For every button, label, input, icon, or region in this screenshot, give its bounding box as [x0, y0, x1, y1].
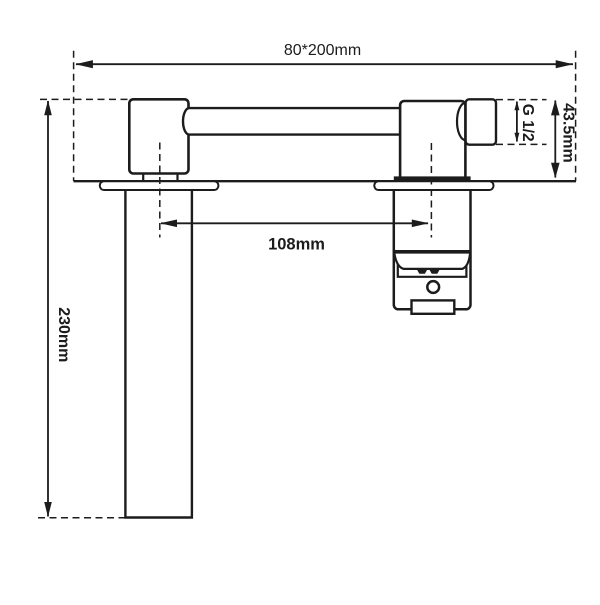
svg-text:43.5mm: 43.5mm — [559, 103, 576, 163]
svg-text:108mm: 108mm — [268, 236, 325, 254]
svg-text:G 1/2: G 1/2 — [519, 104, 536, 142]
svg-text:80*200mm: 80*200mm — [284, 42, 361, 59]
svg-text:230mm: 230mm — [55, 307, 72, 362]
